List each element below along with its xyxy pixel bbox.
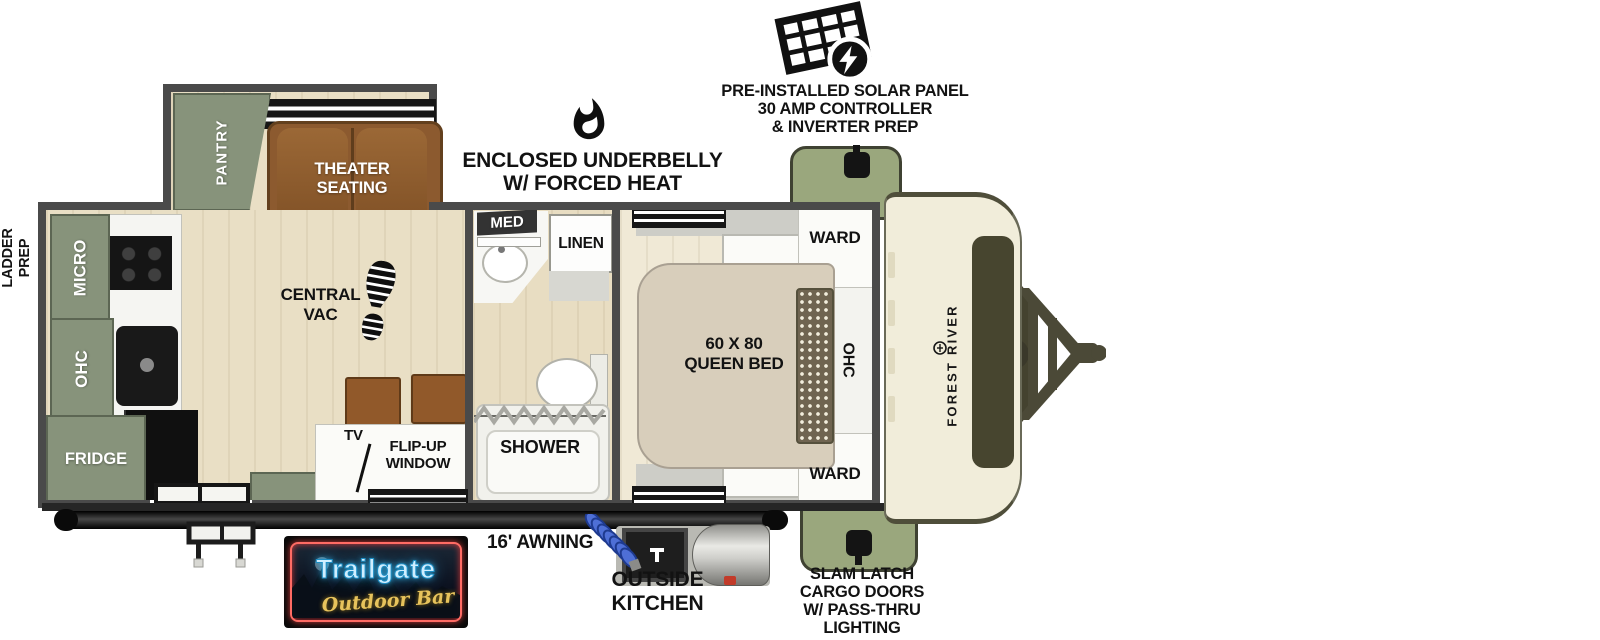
slideout-wall: [163, 84, 171, 210]
logo-title: Trailgate: [292, 554, 460, 585]
cap-molding: [888, 300, 895, 326]
entry-steps-icon: [186, 521, 268, 569]
awning-callout: 16' AWNING: [487, 532, 593, 554]
front-window: [972, 236, 1014, 468]
cap-molding: [888, 348, 895, 374]
fridge-label: FRIDGE: [65, 450, 127, 469]
exterior-wall: [429, 202, 880, 210]
flame-icon: [566, 94, 612, 146]
ohc-bedroom-label-box: OHC: [822, 287, 872, 433]
trailgate-logo: Trailgate Outdoor Bar: [284, 536, 468, 628]
slam-latch-callout: SLAM LATCH CARGO DOORS W/ PASS-THRU LIGH…: [782, 565, 942, 637]
interior-wall: [612, 210, 620, 500]
exterior-wall: [38, 202, 171, 210]
ohc-kitchen-label: OHC: [72, 350, 92, 388]
microwave-cabinet: MICRO: [50, 214, 110, 322]
exterior-wall: [872, 202, 880, 508]
overhead-cabinet-kitchen: OHC: [50, 318, 114, 419]
range-cooktop: [110, 236, 172, 290]
tv-label: TV: [344, 427, 363, 444]
ottoman: [411, 374, 467, 424]
linen-cabinet: LINEN: [549, 214, 613, 273]
bed-label: 60 X 80 QUEEN BED: [637, 334, 831, 374]
latch-icon-bottom: [846, 530, 872, 556]
med-label: MED: [490, 213, 523, 232]
flip-up-window-label: FLIP-UP WINDOW: [374, 438, 462, 472]
faucet-icon: [498, 246, 505, 253]
faucet-glyph: [655, 552, 659, 562]
cap-molding: [888, 396, 895, 422]
brand-label-box: FOREST RIVER: [938, 250, 966, 480]
brand-label: FOREST RIVER: [945, 304, 960, 426]
med-shelf: [477, 237, 541, 247]
underbelly-callout: ENCLOSED UNDERBELLY W/ FORCED HEAT: [450, 149, 735, 195]
outside-kitchen-callout: OUTSIDE KITCHEN: [585, 568, 730, 616]
theater-seating-label: THEATER SEATING: [267, 160, 437, 198]
micro-label: MICRO: [70, 240, 90, 297]
ottoman: [345, 377, 401, 427]
latch-pin-bottom: [855, 556, 862, 565]
shower-label: SHOWER: [474, 437, 606, 458]
pantry-label: PANTRY: [214, 119, 231, 185]
ohc-bedroom-label: OHC: [838, 343, 856, 378]
ward-top-label: WARD: [798, 228, 872, 248]
latch-icon-top: [844, 152, 870, 178]
medicine-cabinet: MED: [477, 209, 537, 235]
solar-callout: PRE-INSTALLED SOLAR PANEL 30 AMP CONTROL…: [700, 82, 990, 136]
floorplan-canvas: FOREST RIVER PANTRY THEATER SEATING MICR…: [0, 0, 1600, 640]
logo-panel: Trailgate Outdoor Bar: [290, 542, 462, 622]
ladder-prep-callout: LADDER PREP: [0, 208, 40, 308]
slideout-wall: [163, 84, 437, 92]
cap-molding: [888, 252, 895, 278]
awning-end-cap: [54, 509, 78, 531]
entry-step-divider: [198, 485, 202, 503]
sink-drain-icon: [140, 358, 154, 372]
linen-label: LINEN: [558, 235, 604, 253]
interior-wall: [465, 210, 473, 500]
ward-bottom-label: WARD: [798, 464, 872, 484]
fridge-cabinet: FRIDGE: [46, 415, 146, 503]
linen-base: [549, 271, 609, 301]
shower-curtain-icon: [474, 400, 606, 430]
frame-rail: [42, 503, 884, 511]
solar-panel-icon: [770, 0, 882, 86]
bath-sink: [482, 243, 528, 283]
entry-step-well: [154, 483, 250, 505]
